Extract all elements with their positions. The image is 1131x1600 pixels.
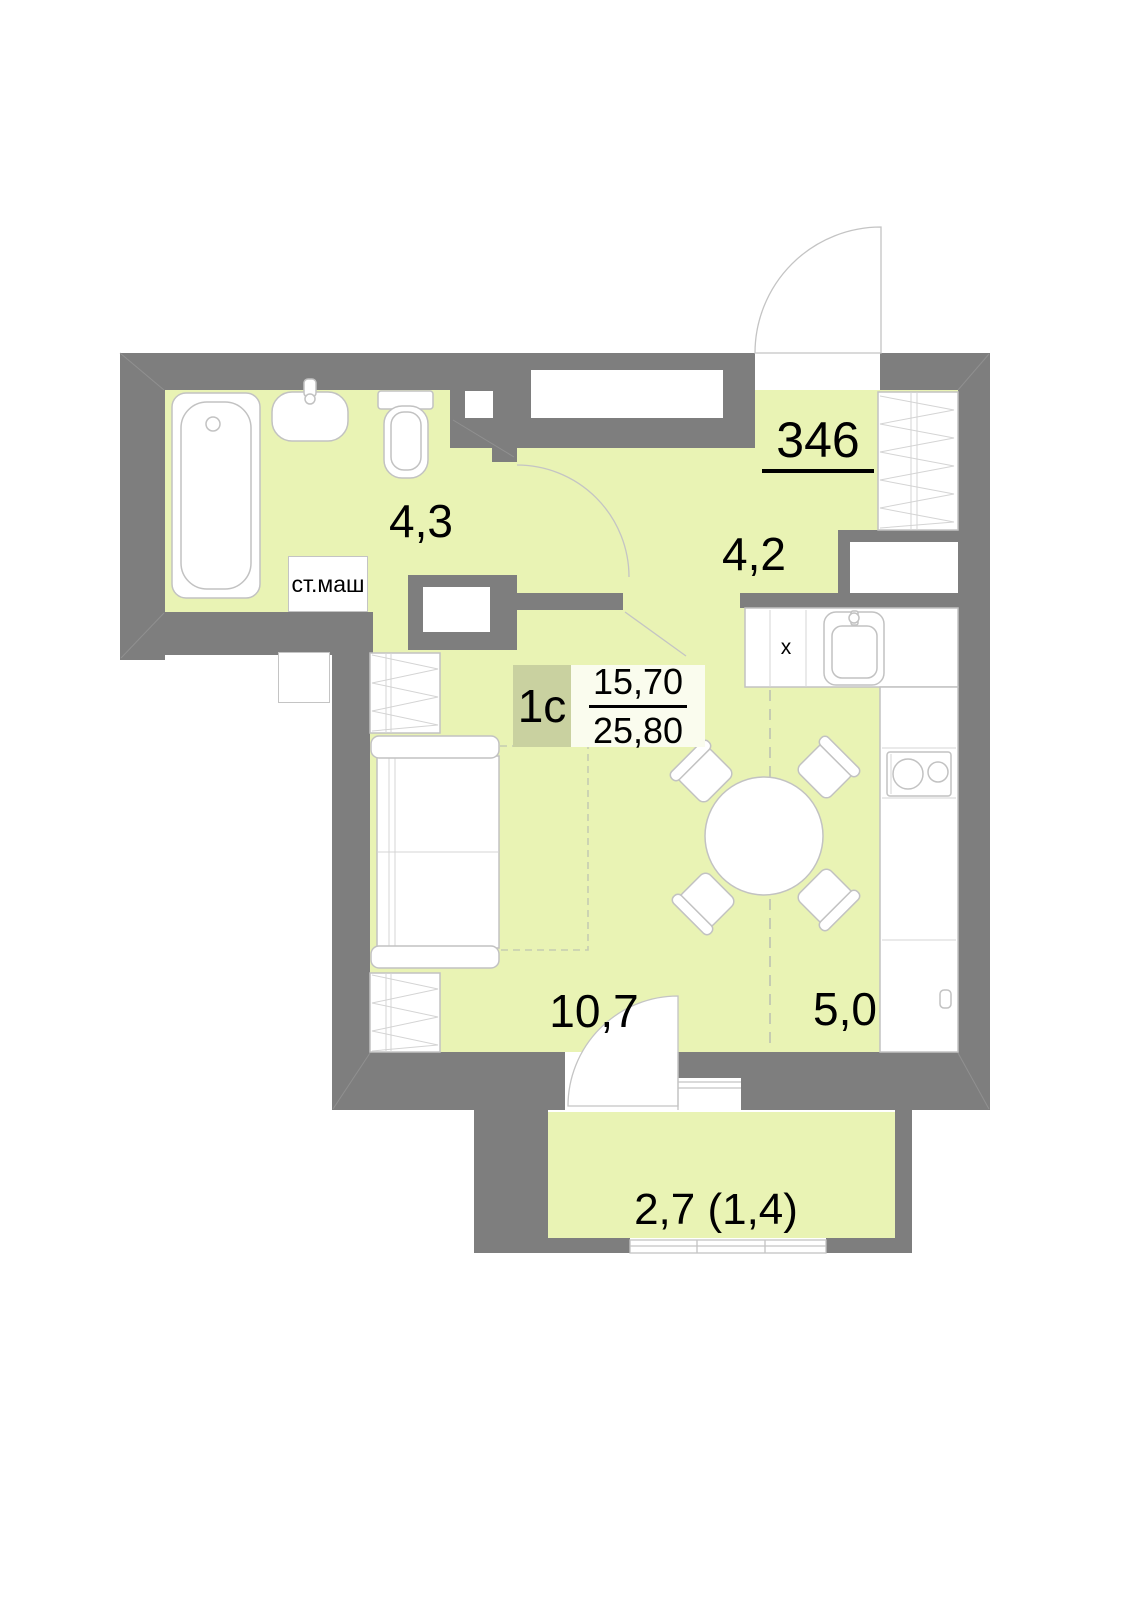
window-icon <box>678 1082 741 1088</box>
unit-living-area: 15,70 <box>589 661 687 708</box>
kitchen-mark-label: x <box>771 637 801 658</box>
unit-area-fraction: 15,70 25,80 <box>571 665 705 747</box>
toilet-icon <box>378 391 433 478</box>
room-area-balcony: 2,7 (1,4) <box>541 1188 891 1232</box>
bathroom-sink-icon <box>272 379 348 441</box>
floor-plan-page: 346 4,3 4,2 10,7 5,0 2,7 (1,4) 1с 15,70 … <box>0 0 1131 1600</box>
wardrobe-top-icon <box>370 653 440 733</box>
washing-machine-label: ст.маш <box>292 571 365 598</box>
furniture-layer <box>0 0 1131 1600</box>
entry-wardrobe-icon <box>878 392 958 530</box>
entrance-door-icon <box>755 227 881 353</box>
fold-out-bed-outline <box>500 746 588 950</box>
hall-door-leaf-icon <box>625 612 686 656</box>
apartment-number: 346 <box>762 415 874 473</box>
bathroom-door-icon <box>517 465 629 577</box>
dining-table-icon <box>705 777 823 895</box>
balcony-glazing-icon <box>630 1240 826 1253</box>
unit-total-area: 25,80 <box>593 708 683 752</box>
room-area-bathroom: 4,3 <box>346 498 496 544</box>
kitchen-sink-icon <box>824 611 884 685</box>
washing-machine-icon: ст.маш <box>288 556 368 612</box>
room-area-living: 10,7 <box>504 988 684 1034</box>
bathtub-icon <box>172 393 260 598</box>
unit-info-tag: 1с 15,70 25,80 <box>513 665 705 747</box>
room-area-hallway: 4,2 <box>679 531 829 577</box>
wardrobe-bottom-icon <box>370 973 440 1052</box>
room-area-kitchen: 5,0 <box>770 986 920 1032</box>
unit-type-badge: 1с <box>513 665 571 747</box>
sofa-icon <box>371 736 499 968</box>
